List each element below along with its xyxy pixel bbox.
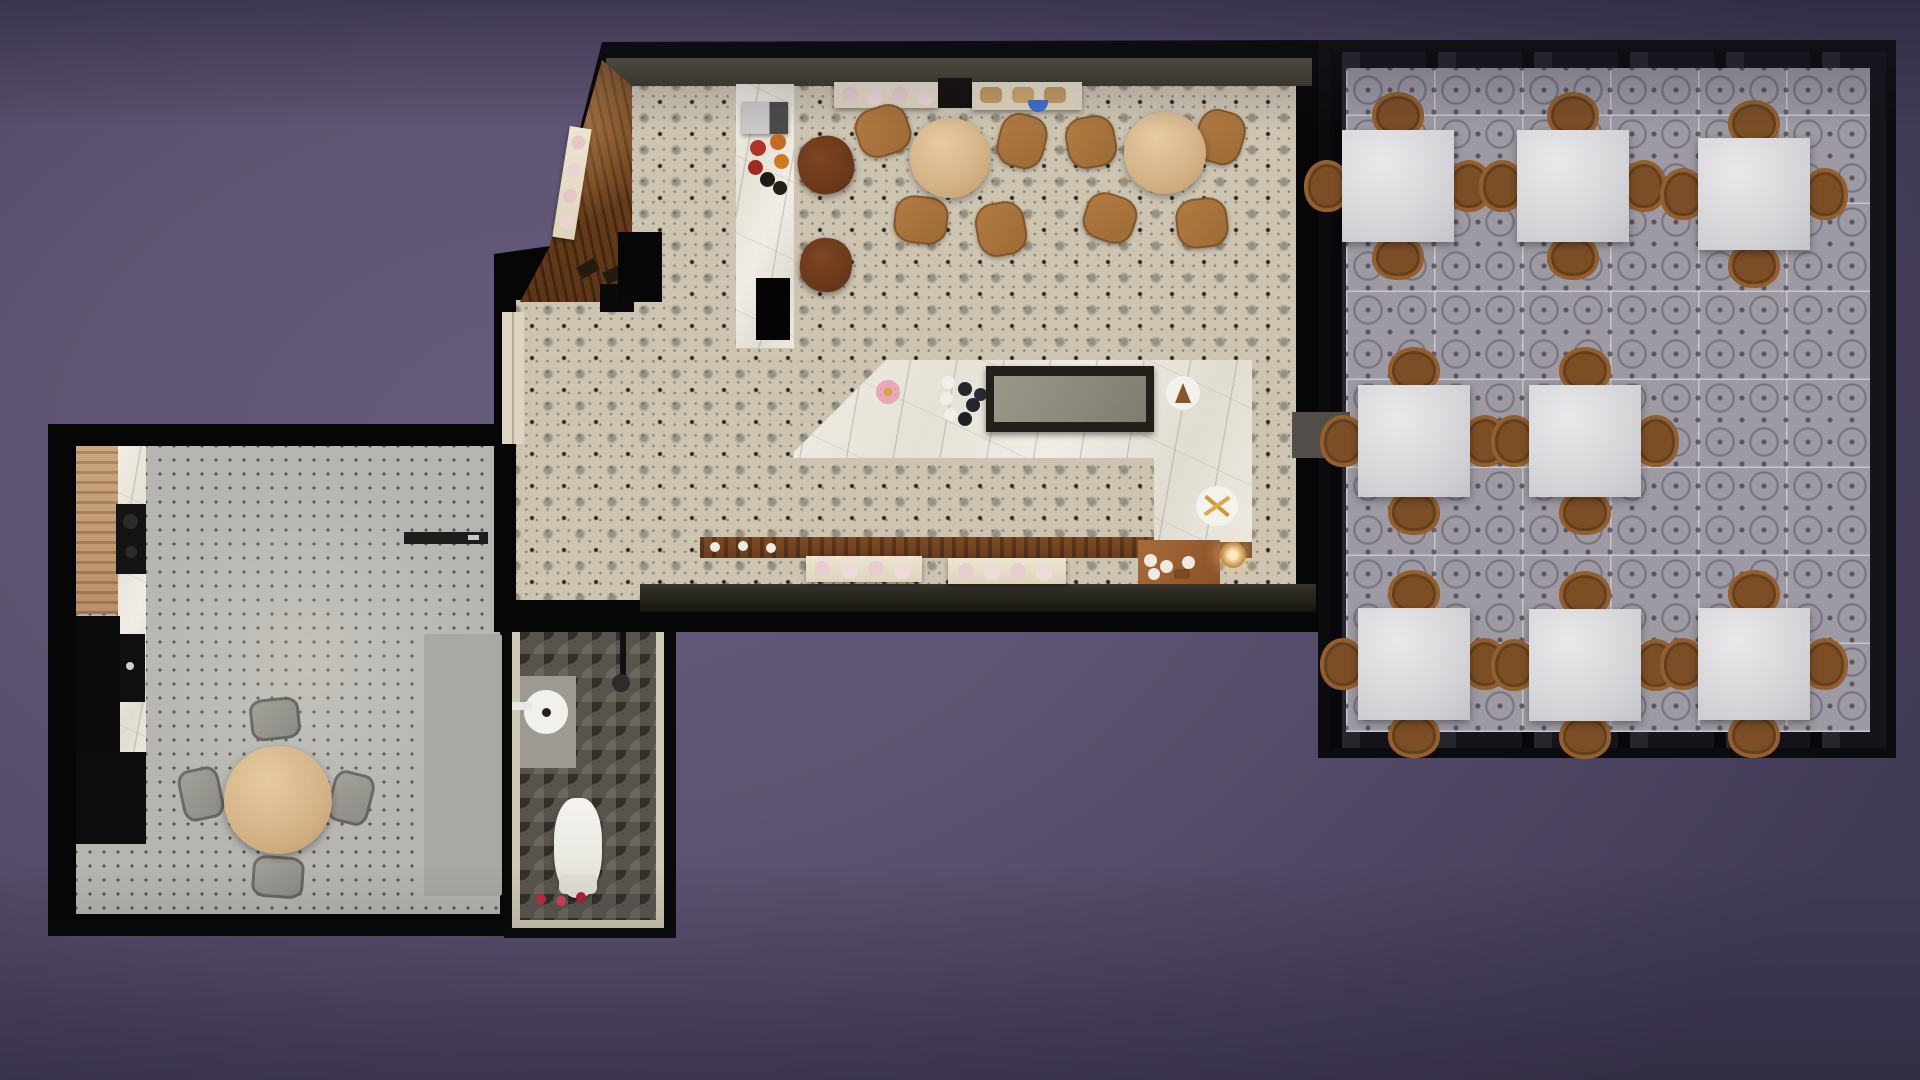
coffee-station	[736, 84, 794, 348]
bath-faucet	[512, 702, 532, 710]
candle-tray	[1220, 542, 1246, 568]
espresso-machine	[742, 102, 788, 134]
dining-table	[1698, 138, 1810, 250]
door-seam	[512, 312, 514, 444]
flower	[576, 892, 586, 902]
bath-flowers	[534, 890, 596, 906]
cup	[944, 408, 957, 421]
kitchen-chair	[248, 696, 302, 743]
cup	[940, 392, 953, 405]
dining-table	[1517, 130, 1629, 242]
plate	[1160, 560, 1173, 573]
stool-pink	[566, 162, 582, 178]
cup	[750, 140, 766, 156]
stool-pink	[917, 89, 933, 105]
dining-table	[1698, 608, 1810, 720]
pastry-display-case	[986, 366, 1154, 432]
kitchen-rug	[424, 634, 502, 896]
flower-center	[884, 388, 892, 396]
sink-drain	[542, 708, 551, 717]
cafe-chair	[1174, 195, 1231, 250]
shower-head	[612, 674, 630, 692]
kitchen-counter-wood	[76, 446, 120, 614]
kitchen-cabinets-corner	[76, 752, 146, 844]
cup	[710, 542, 720, 552]
stool-pink	[868, 561, 884, 577]
stool-pink	[1010, 563, 1026, 579]
kitchen-counter-marble	[118, 446, 146, 762]
cake-stand	[1166, 376, 1200, 410]
bar-divider	[938, 78, 972, 108]
serving-bowl	[1196, 486, 1238, 526]
kitchen-table	[224, 746, 332, 854]
cup	[942, 376, 955, 389]
cafe-round-table	[1124, 112, 1206, 194]
display-glass	[994, 376, 1146, 422]
plate	[1182, 556, 1195, 569]
cup	[748, 160, 763, 175]
cafe-window-glass	[640, 584, 1316, 612]
dining-table	[1358, 385, 1470, 497]
cup	[958, 412, 972, 426]
stool-pink	[958, 563, 974, 579]
top-window-bar	[972, 82, 1082, 110]
stool-pink	[842, 87, 858, 103]
bottom-window-bar	[806, 556, 922, 582]
stool-pink	[892, 87, 908, 103]
flower	[536, 894, 546, 904]
dining-table	[1529, 385, 1641, 497]
kitchen-door	[404, 532, 488, 544]
service-cabinet	[618, 232, 662, 302]
cafe-round-table	[910, 118, 990, 198]
plate	[1144, 554, 1157, 567]
pastry	[1174, 569, 1190, 579]
cup	[958, 382, 972, 396]
dining-table	[1529, 609, 1641, 721]
door-handle	[468, 535, 479, 540]
burner	[123, 514, 138, 529]
stool-pink	[814, 561, 830, 577]
stool-pink	[867, 89, 883, 105]
floorplan-render	[0, 0, 1920, 1080]
cup	[770, 134, 786, 150]
stool-pink	[558, 214, 574, 230]
bottom-window-bar	[948, 558, 1066, 584]
stool-pink	[1036, 565, 1052, 581]
cup	[738, 541, 748, 551]
kitchen-chair	[251, 854, 306, 900]
stool-pink	[842, 563, 858, 579]
flower	[556, 896, 566, 906]
dining-table	[1358, 608, 1470, 720]
pie-slice	[1175, 383, 1191, 403]
bath-sink	[524, 690, 568, 734]
burner	[125, 546, 137, 558]
cafe-chair	[892, 193, 951, 246]
dining-table	[1342, 130, 1454, 242]
toilet	[554, 798, 602, 898]
cup	[773, 181, 787, 195]
faucet-dot	[126, 662, 134, 670]
stool-pink	[984, 565, 1000, 581]
stool-pink	[570, 134, 586, 150]
cup	[774, 154, 789, 169]
stool-pink	[562, 188, 578, 204]
entry-side-door	[502, 312, 524, 444]
floor-hatch	[756, 278, 790, 340]
flower-plate	[876, 380, 900, 404]
cooktop	[116, 504, 146, 574]
copper-counter	[1138, 540, 1220, 584]
plate	[1148, 568, 1160, 580]
stool-wood	[980, 87, 1002, 103]
cup	[766, 543, 776, 553]
stool-pink	[894, 563, 910, 579]
